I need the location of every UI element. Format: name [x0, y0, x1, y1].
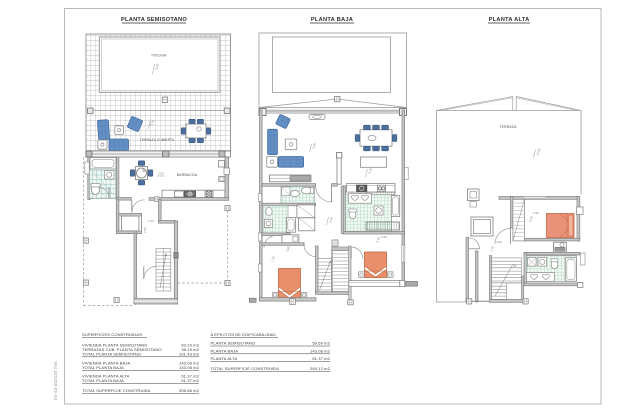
svg-text:PLANTA ALTA: PLANTA ALTA: [489, 17, 530, 23]
svg-text:PLANTA ALTA: PLANTA ALTA: [211, 356, 238, 361]
svg-text:PLANTA SEMISOTANO: PLANTA SEMISOTANO: [121, 17, 187, 23]
svg-text:143.08 m2: 143.08 m2: [310, 348, 331, 353]
svg-text:59.69 m2: 59.69 m2: [312, 341, 330, 346]
svg-text:TOTAL PLANTA BAJA: TOTAL PLANTA BAJA: [82, 365, 124, 370]
svg-text:TOTAL PLANTA BAJA: TOTAL PLANTA BAJA: [82, 378, 124, 383]
svg-text:TERRAZA CUBIERTA: TERRAZA CUBIERTA: [140, 138, 175, 142]
svg-text:2.85: 2.85: [158, 172, 164, 176]
svg-text:PISCINA: PISCINA: [152, 54, 168, 58]
svg-text:PLANTA BAJA: PLANTA BAJA: [211, 348, 239, 353]
svg-text:61.37 m2: 61.37 m2: [312, 356, 330, 361]
svg-text:BARBACOA: BARBACOA: [177, 173, 198, 177]
svg-text:04-43-402420 mm.: 04-43-402420 mm.: [53, 360, 58, 400]
svg-text:A EFECTOS DE EDIFICABILIDAD:: A EFECTOS DE EDIFICABILIDAD:: [211, 332, 277, 337]
svg-text:2.80: 2.80: [496, 240, 502, 244]
svg-text:TOTAL SUPERFICIE CONSTRUIDA: TOTAL SUPERFICIE CONSTRUIDA: [211, 366, 280, 371]
svg-text:305.88 m2: 305.88 m2: [179, 388, 200, 393]
svg-text:101.43 m2: 101.43 m2: [179, 352, 200, 357]
svg-text:264.12 m2: 264.12 m2: [310, 366, 331, 371]
svg-text:TERRAZA: TERRAZA: [499, 125, 517, 129]
svg-text:143.08 m2: 143.08 m2: [179, 365, 200, 370]
svg-text:2.05: 2.05: [143, 227, 147, 233]
svg-text:1.90: 1.90: [148, 219, 154, 223]
svg-text:1.86: 1.86: [381, 235, 387, 239]
svg-text:SUPERFICIES CONSTRUIDAS:: SUPERFICIES CONSTRUIDAS:: [82, 332, 143, 337]
svg-text:61.37 m2: 61.37 m2: [181, 378, 199, 383]
svg-text:PLANTA BAJA: PLANTA BAJA: [311, 17, 353, 23]
svg-text:2.90: 2.90: [533, 211, 539, 215]
svg-text:PLANTA SEMISOTANO: PLANTA SEMISOTANO: [211, 341, 256, 346]
svg-text:TOTAL SUPERFICIE CONSTRUIDA: TOTAL SUPERFICIE CONSTRUIDA: [82, 388, 151, 393]
svg-text:TOTAL PLANTA SEMISOTANO: TOTAL PLANTA SEMISOTANO: [82, 352, 141, 357]
